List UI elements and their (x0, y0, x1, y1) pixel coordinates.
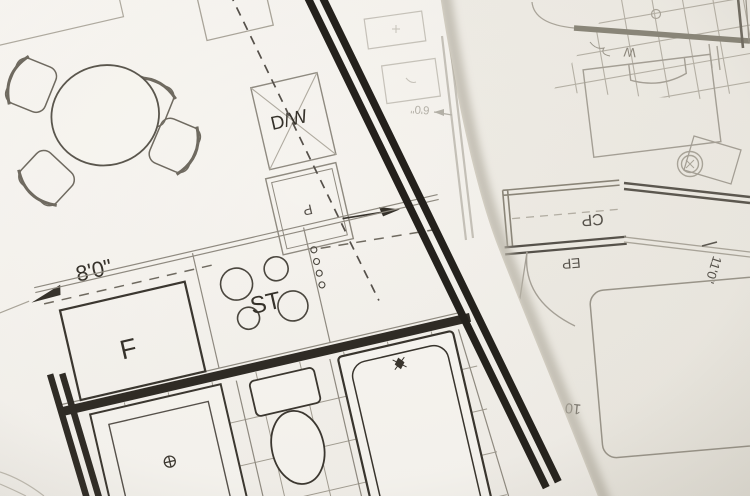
blueprint-photo-svg: W CP EP (0, 0, 750, 496)
blueprint-photo: W CP EP (0, 0, 750, 496)
vignette (0, 0, 750, 496)
